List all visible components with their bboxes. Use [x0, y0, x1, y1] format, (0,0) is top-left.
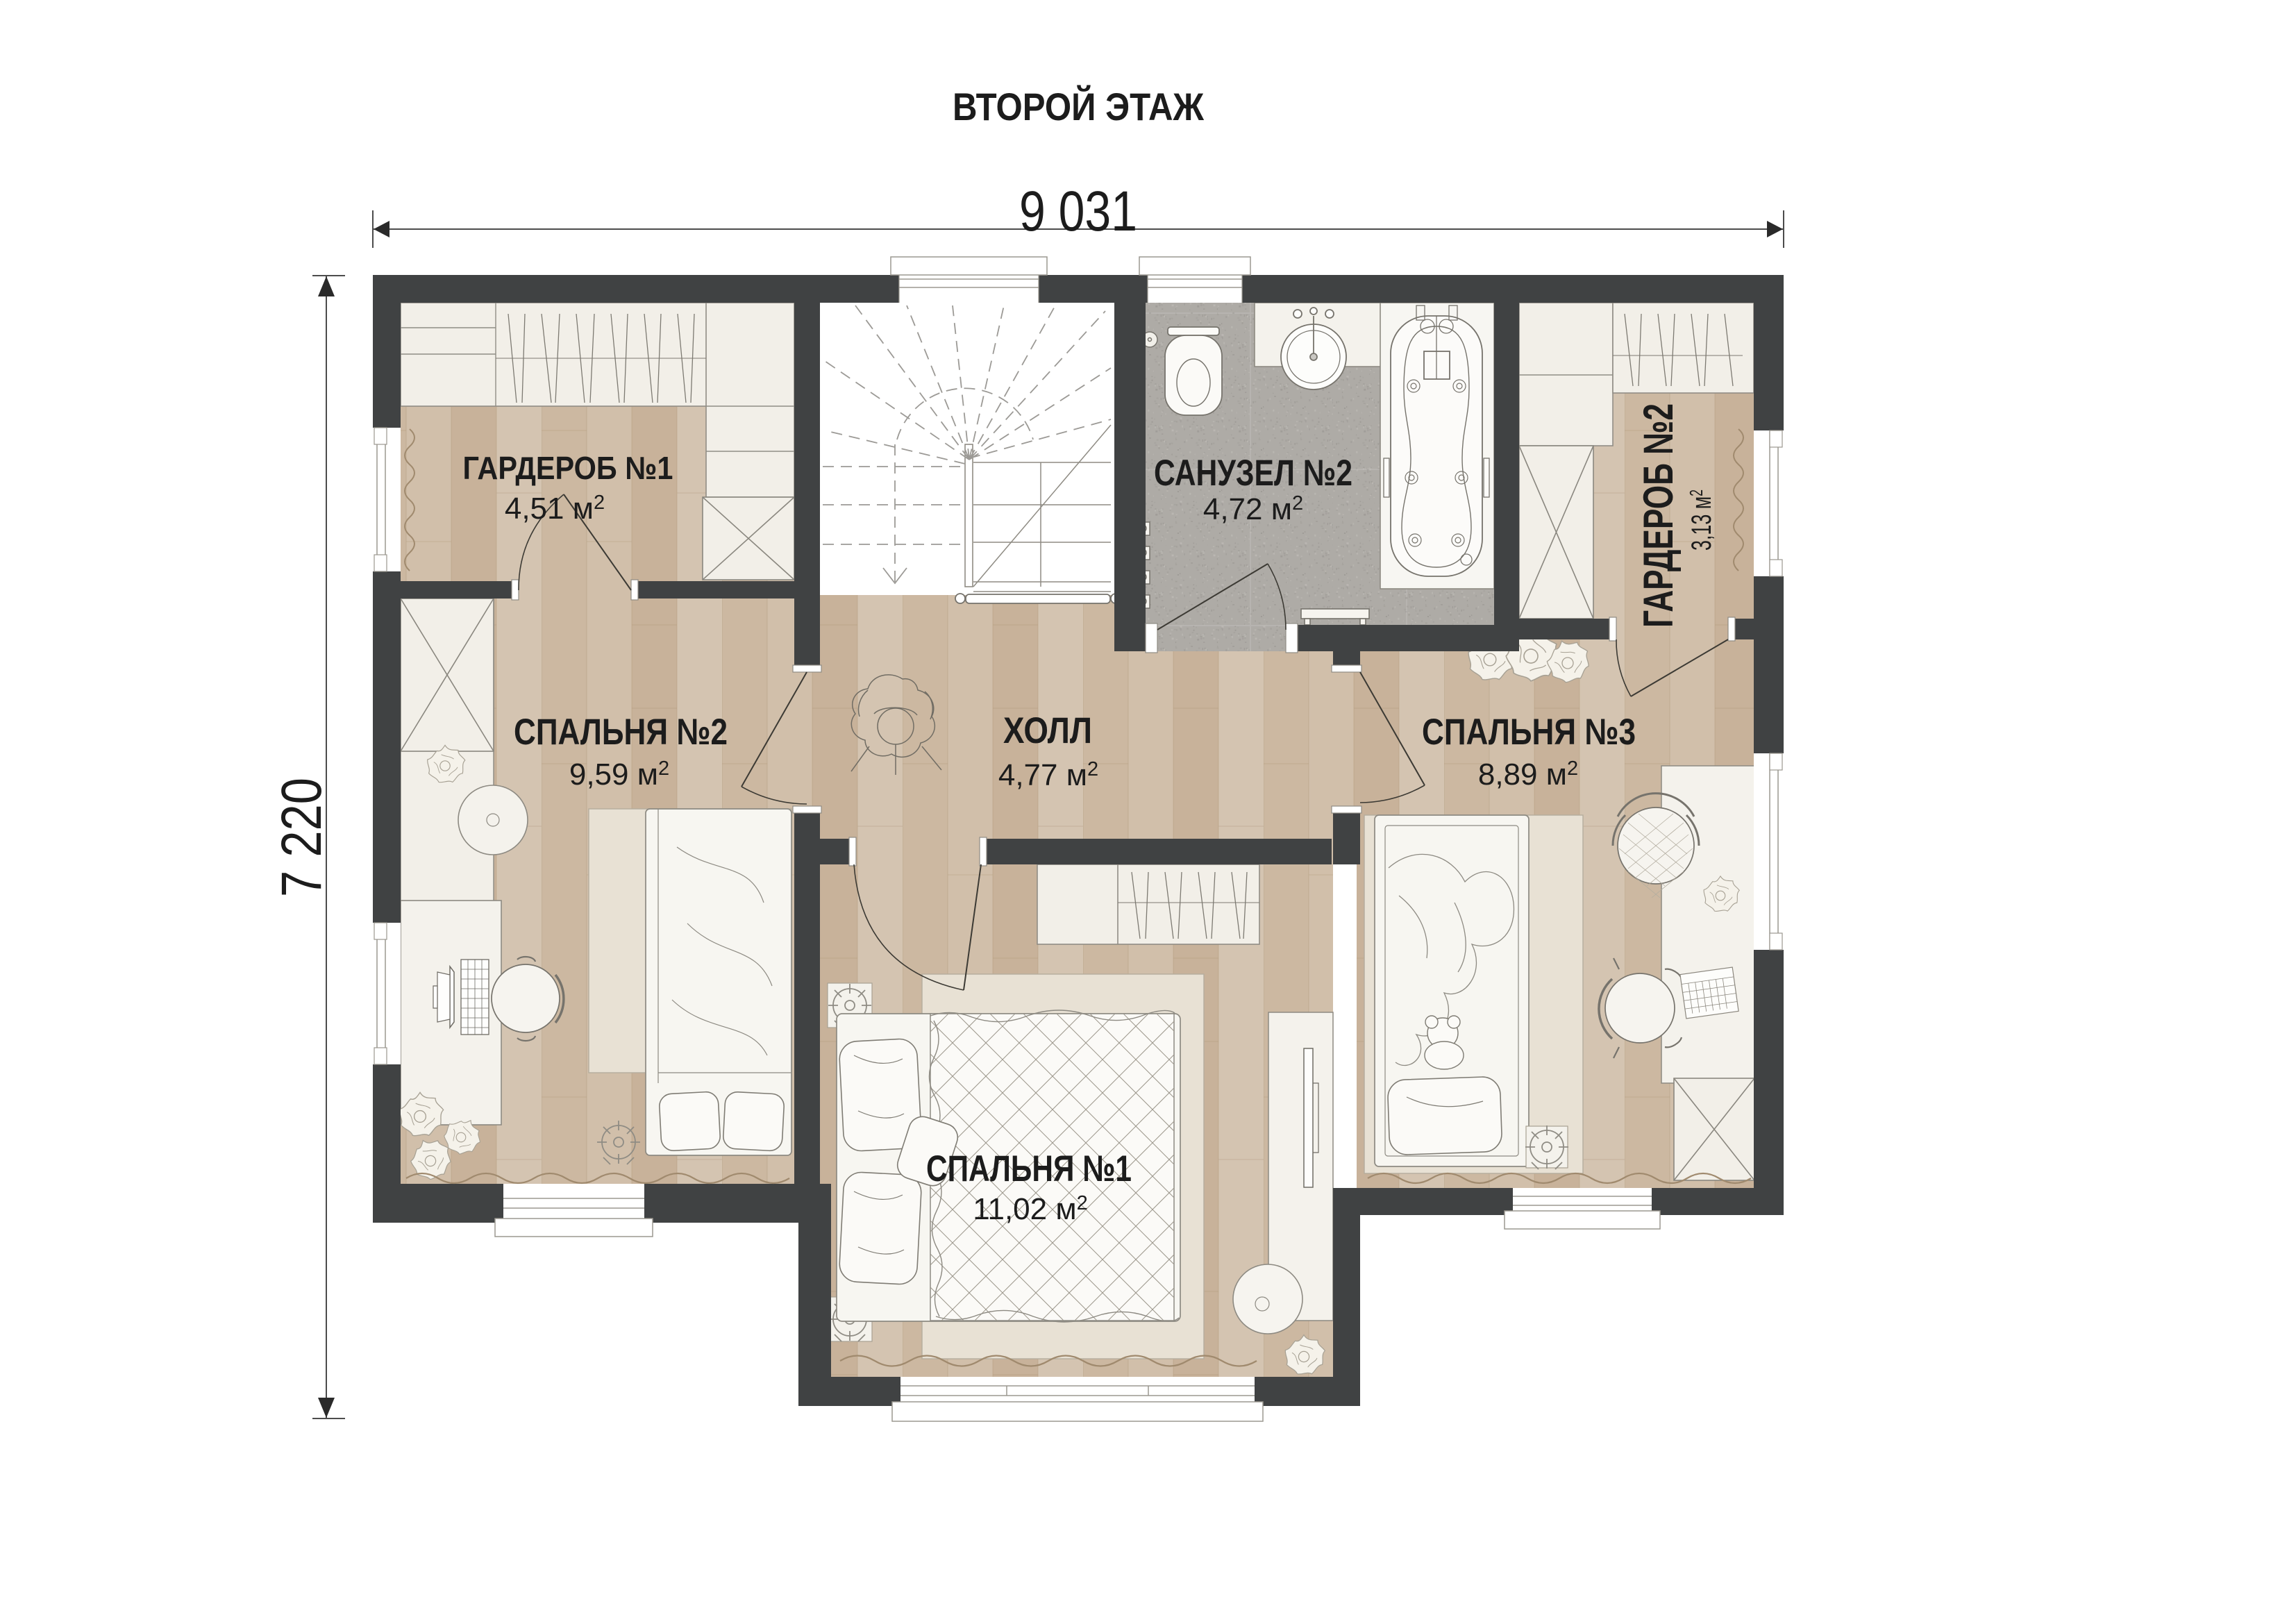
- svg-text:7 220: 7 220: [270, 778, 333, 897]
- svg-text:СПАЛЬНЯ №3: СПАЛЬНЯ №3: [1422, 712, 1636, 753]
- svg-text:8,89 м2: 8,89 м2: [1478, 757, 1578, 792]
- svg-text:4,51 м2: 4,51 м2: [505, 492, 605, 526]
- svg-text:11,02 м2: 11,02 м2: [973, 1192, 1087, 1226]
- svg-text:СПАЛЬНЯ №2: СПАЛЬНЯ №2: [514, 712, 728, 753]
- svg-text:ХОЛЛ: ХОЛЛ: [1003, 710, 1092, 751]
- svg-text:3,13 м2: 3,13 м2: [1686, 489, 1717, 551]
- svg-text:ГАРДЕРОБ №2: ГАРДЕРОБ №2: [1635, 403, 1682, 628]
- svg-text:4,72 м2: 4,72 м2: [1203, 492, 1303, 526]
- svg-text:САНУЗЕЛ №2: САНУЗЕЛ №2: [1154, 453, 1352, 494]
- svg-text:9,59 м2: 9,59 м2: [569, 757, 669, 792]
- svg-text:ГАРДЕРОБ №1: ГАРДЕРОБ №1: [463, 450, 673, 486]
- svg-text:ВТОРОЙ ЭТАЖ: ВТОРОЙ ЭТАЖ: [953, 85, 1204, 128]
- svg-text:4,77 м2: 4,77 м2: [998, 758, 1098, 792]
- svg-text:9 031: 9 031: [1019, 180, 1137, 243]
- svg-text:СПАЛЬНЯ №1: СПАЛЬНЯ №1: [926, 1148, 1132, 1189]
